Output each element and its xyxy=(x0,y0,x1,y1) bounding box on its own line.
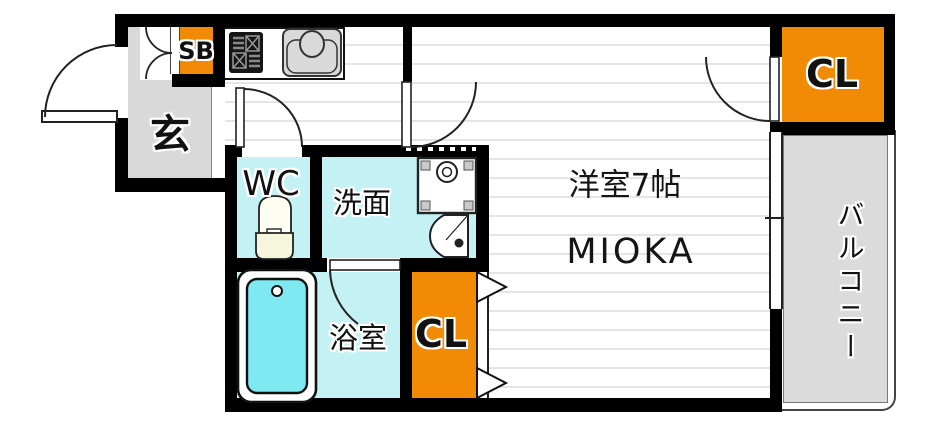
entrance-door-icon xyxy=(42,45,117,122)
label-building-name: MIOKA xyxy=(566,232,695,272)
closet-door-icon xyxy=(706,57,779,121)
label-closet-upper: CL xyxy=(806,52,858,96)
label-shoe-box: SB xyxy=(178,37,214,65)
label-closet-lower: CL xyxy=(415,312,467,356)
washing-machine-pan-icon xyxy=(418,158,476,213)
floor-plan: 玄 SB WC 洗面 浴室 CL CL 洋室7帖 MIOKA バルコニー xyxy=(0,0,932,424)
wc-door-icon xyxy=(236,88,302,147)
kitchen-sink-icon xyxy=(283,29,341,76)
label-washroom: 洗面 xyxy=(333,180,391,222)
vanity-sink-icon xyxy=(430,215,468,257)
label-balcony: バルコニー xyxy=(829,201,868,366)
label-western-room: 洋室7帖 xyxy=(569,160,682,205)
label-genkan: 玄 xyxy=(150,102,190,160)
label-wc: WC xyxy=(242,164,299,204)
fixtures-layer xyxy=(0,0,932,424)
folding-closet-door-icon xyxy=(477,272,506,398)
label-bathroom: 浴室 xyxy=(329,315,387,357)
toilet-icon xyxy=(256,196,293,259)
shoe-box-double-door-icon xyxy=(146,27,172,79)
room-door-icon xyxy=(402,82,476,147)
gas-stove-icon xyxy=(229,32,263,73)
bathtub-icon xyxy=(238,270,316,402)
